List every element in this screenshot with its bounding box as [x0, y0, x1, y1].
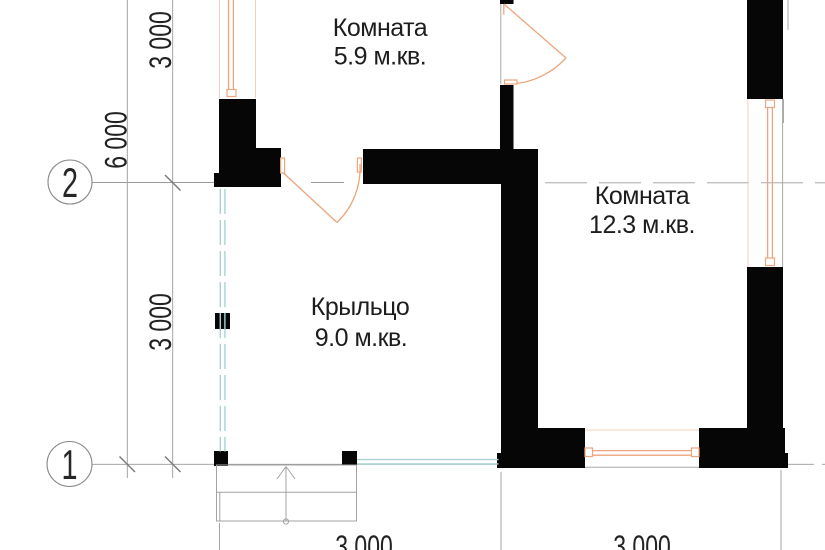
room-label-porch-9-0: Крыльцо 9.0 м.кв. — [311, 293, 410, 352]
wall-bottom-left-segment — [501, 428, 585, 468]
dim-text-left-upper-3000: 3 000 — [143, 11, 178, 69]
window-bottom-wall — [585, 430, 699, 467]
room-label-room-12-3: Комната 12.3 м.кв. — [589, 182, 695, 239]
room-name: Комната — [333, 14, 428, 42]
grid-axis-marker-2: 2 — [48, 160, 92, 206]
stairs-direction-arrow — [277, 467, 295, 525]
room-area: 12.3 м.кв. — [589, 211, 695, 239]
window-sill-mark — [692, 448, 700, 457]
door-top-partition — [501, 4, 566, 84]
window-sill-mark — [766, 100, 775, 108]
wall-topleft-foot — [214, 173, 230, 187]
floor-plan-drawing: 2 1 3 000 6 000 3 000 3 000 3 000 Комнат… — [0, 0, 825, 550]
window-top-left — [220, 0, 256, 98]
dim-text-bottom-right-3000: 3 000 — [613, 529, 671, 550]
wall-partition-below-door — [500, 85, 514, 149]
door-jamb-mark — [357, 158, 361, 172]
room-area: 9.0 м.кв. — [315, 324, 408, 352]
door-leaf — [284, 173, 338, 223]
door-porch-entry — [281, 158, 362, 223]
grid-axis-1-label: 1 — [61, 442, 77, 488]
room-area: 5.9 м.кв. — [334, 43, 427, 71]
dimension-lines-left — [120, 0, 181, 478]
door-swing-arc — [512, 58, 566, 84]
floor-plan-canvas: 2 1 3 000 6 000 3 000 3 000 3 000 Комнат… — [0, 0, 825, 550]
window-sill-mark — [227, 90, 236, 97]
door-leaf — [504, 4, 566, 58]
wall-right-above-window — [747, 0, 783, 99]
room-name: Комната — [595, 182, 690, 210]
door-swing-arc — [337, 164, 360, 223]
window-sill-mark — [766, 258, 775, 266]
wall-bottom-left-foot — [497, 453, 512, 468]
room-name: Крыльцо — [311, 293, 410, 321]
stairs — [217, 465, 357, 524]
porch-post-left-middle — [215, 313, 230, 329]
room-label-room-5-9: Комната 5.9 м.кв. — [333, 14, 428, 71]
dim-text-left-total-6000: 6 000 — [98, 111, 133, 169]
grid-axis-marker-1: 1 — [47, 442, 92, 489]
porch-post-bottom-middle — [342, 451, 357, 465]
grid-axis-2-label: 2 — [62, 160, 78, 206]
wall-topleft-extension — [256, 148, 281, 187]
porch-post-bottom-left — [214, 451, 228, 466]
door-jamb-mark — [505, 80, 518, 84]
dim-text-left-lower-3000: 3 000 — [143, 293, 178, 351]
door-jamb-mark — [281, 158, 285, 173]
wall-right-below-window — [747, 267, 783, 468]
wall-partition-stub-top — [500, 0, 514, 4]
dim-text-bottom-left-3000: 3 000 — [335, 529, 393, 550]
window-sill-mark — [585, 448, 593, 457]
wall-center-vertical — [501, 184, 538, 428]
porch-glazing-bottom — [357, 460, 499, 464]
wall-center-horizontal — [363, 149, 538, 184]
